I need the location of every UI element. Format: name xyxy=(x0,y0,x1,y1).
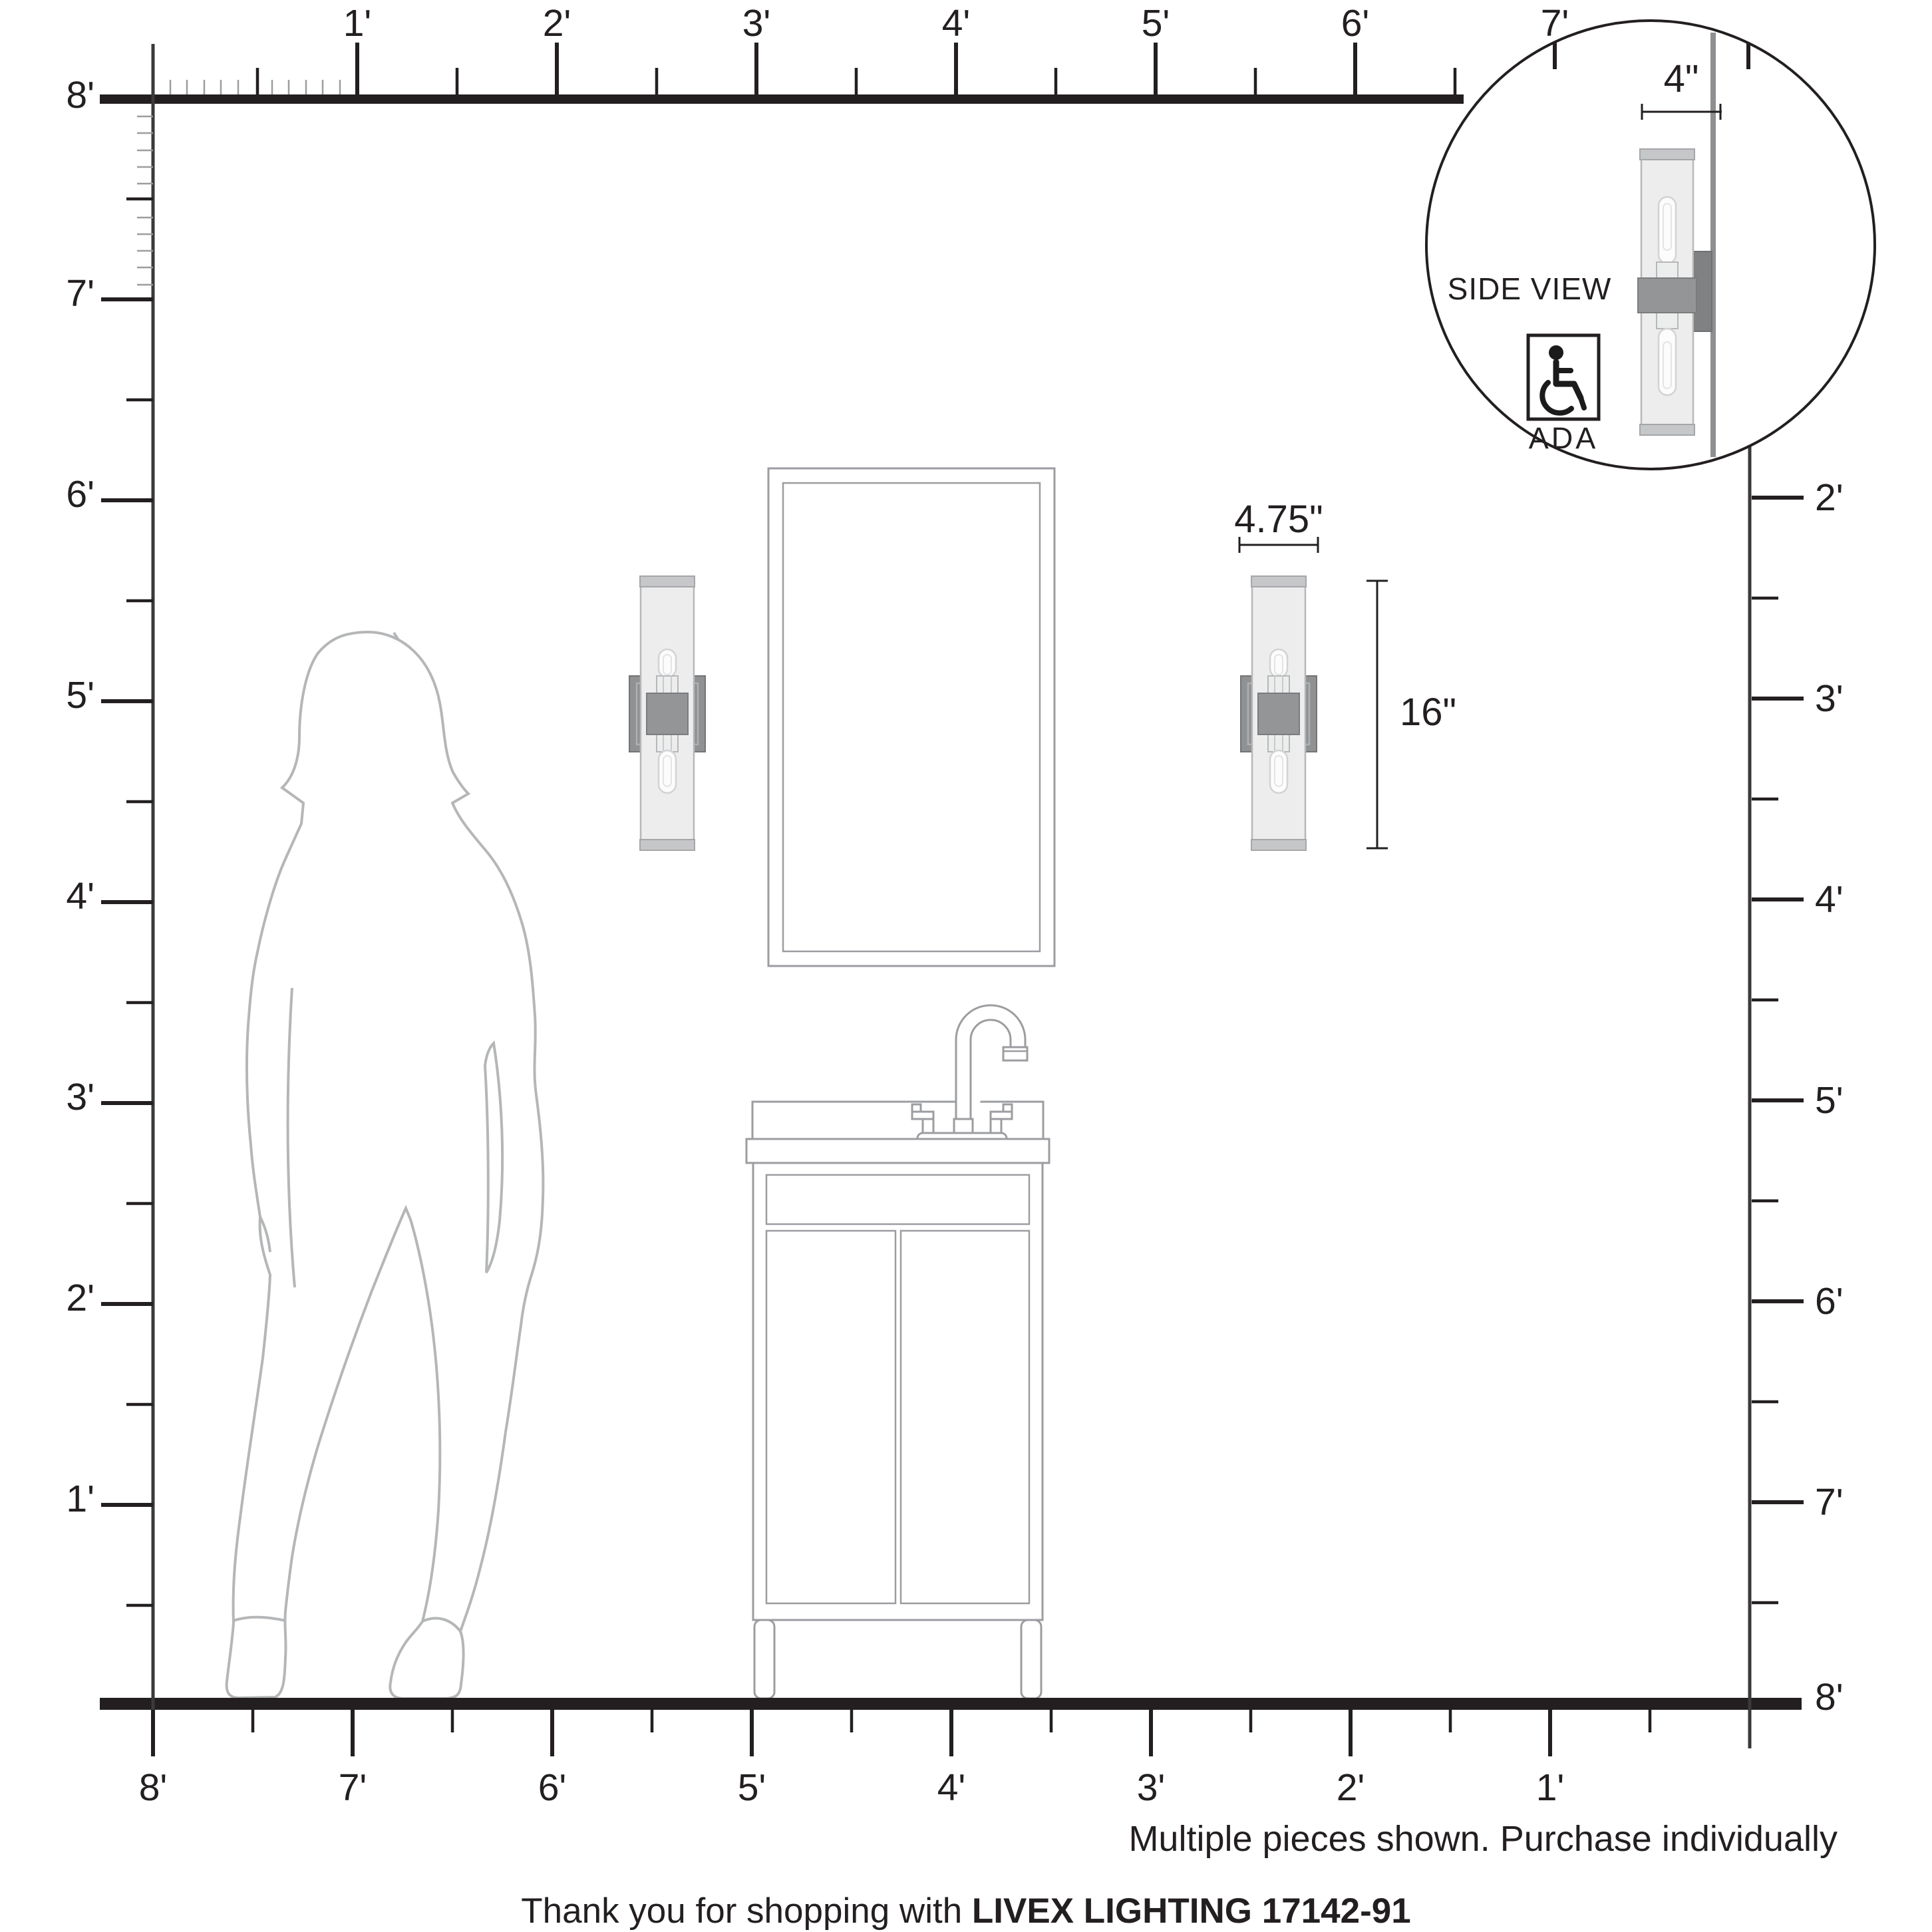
bottom-ruler-label-4ft: 4' xyxy=(937,1766,966,1809)
left-ruler-label-1ft: 1' xyxy=(66,1478,94,1520)
left-ruler-label-4ft: 4' xyxy=(66,875,94,917)
top-ruler-foot-ticks xyxy=(357,43,1555,94)
footer-brand-model: LIVEX LIGHTING 17142-91 xyxy=(972,1891,1411,1931)
footer-thanks-prefix: Thank you for shopping with xyxy=(521,1891,972,1931)
left-sconce xyxy=(629,576,705,850)
wheelchair-footrest xyxy=(1581,398,1584,408)
side-view-label: SIDE VIEW xyxy=(1448,271,1612,306)
faucet-handle-right-lever xyxy=(991,1112,1012,1119)
side-sconce-upper-bulb xyxy=(1659,197,1676,263)
right-ruler-label-7ft: 7' xyxy=(1815,1481,1844,1524)
left-ruler-label-5ft: 5' xyxy=(66,674,94,717)
right-ruler-label-6ft: 6' xyxy=(1815,1280,1844,1323)
right-ruler-label-2ft: 2' xyxy=(1815,476,1844,519)
width-dimension: 4.75" xyxy=(1234,498,1323,553)
side-sconce-bottom-cap xyxy=(1640,424,1694,435)
left-ruler-label-2ft: 2' xyxy=(66,1277,94,1319)
faucet-riser-collar xyxy=(954,1119,973,1133)
bottom-ruler-label-2ft: 2' xyxy=(1337,1766,1365,1809)
left-ruler-label-6ft: 6' xyxy=(66,473,94,516)
product-dimension-diagram: 4.75" 16" 1' 2' 3' 4' 5' 6' 7' 8' 7' 6' … xyxy=(0,0,1932,1932)
mirror-inner-frame xyxy=(783,483,1040,951)
side-sconce-top-cap xyxy=(1640,149,1694,160)
top-ruler-half-ticks xyxy=(257,68,1455,94)
footer-thanks: Thank you for shopping with LIVEX LIGHTI… xyxy=(521,1891,1410,1931)
bottom-ruler-label-3ft: 3' xyxy=(1137,1766,1166,1809)
top-ruler-label-3ft: 3' xyxy=(742,2,771,45)
vanity-door-left xyxy=(766,1231,895,1603)
side-sconce-lower-socket xyxy=(1657,313,1678,329)
top-ruler-label-5ft: 5' xyxy=(1142,2,1170,45)
vanity-door-right xyxy=(901,1231,1029,1603)
left-ruler-label-3ft: 3' xyxy=(66,1076,94,1118)
scale-person-silhouette xyxy=(227,632,544,1698)
mirror xyxy=(768,468,1054,966)
side-sconce-lower-bulb xyxy=(1659,329,1676,395)
right-ruler-label-3ft: 3' xyxy=(1815,677,1844,720)
vanity-countertop xyxy=(746,1139,1049,1163)
faucet-handle-left-nub xyxy=(912,1104,921,1112)
faucet-handle-left-lever xyxy=(912,1112,933,1119)
right-ruler-label-8ft: 8' xyxy=(1815,1676,1844,1718)
width-dimension-label: 4.75" xyxy=(1234,498,1323,541)
left-ruler-foot-ticks xyxy=(101,299,153,1505)
faucet-nozzle xyxy=(1003,1047,1027,1060)
side-sconce-upper-socket xyxy=(1657,262,1678,278)
right-ruler-label-5ft: 5' xyxy=(1815,1079,1844,1122)
footer-note: Multiple pieces shown. Purchase individu… xyxy=(1128,1819,1838,1859)
left-ruler-label-8ft: 8' xyxy=(66,74,94,116)
top-ruler-label-4ft: 4' xyxy=(942,2,971,45)
faucet-handle-right-nub xyxy=(1003,1104,1012,1112)
wheelchair-head xyxy=(1549,345,1563,360)
ada-badge: ADA xyxy=(1528,335,1599,455)
bottom-ruler-label-7ft: 7' xyxy=(339,1766,367,1809)
top-ruler-inch-ticks xyxy=(170,80,340,94)
left-ruler-label-7ft: 7' xyxy=(66,272,94,315)
floor-bar xyxy=(100,1698,1802,1710)
right-ruler-label-4ft: 4' xyxy=(1815,878,1844,921)
height-dimension-line xyxy=(1367,580,1388,849)
ada-label: ADA xyxy=(1529,421,1599,455)
bottom-ruler-label-6ft: 6' xyxy=(538,1766,567,1809)
ceiling-bar xyxy=(100,94,1464,104)
vanity xyxy=(746,1005,1049,1698)
bottom-ruler-label-5ft: 5' xyxy=(738,1766,766,1809)
inset-depth-label: 4" xyxy=(1664,57,1699,100)
bottom-ruler-label-8ft: 8' xyxy=(139,1766,168,1809)
side-sconce-band xyxy=(1638,278,1696,313)
height-dimension-label: 16" xyxy=(1400,691,1456,734)
side-view-inset: 4" SIDE VIEW ADA xyxy=(1426,21,1875,469)
top-ruler-label-6ft: 6' xyxy=(1341,2,1370,45)
height-dimension: 16" xyxy=(1367,580,1456,849)
faucet-handle-left-stem xyxy=(923,1119,933,1133)
top-ruler-label-1ft: 1' xyxy=(343,2,372,45)
vanity-leg-left xyxy=(754,1620,774,1698)
left-ruler-inch-ticks xyxy=(137,116,153,285)
vanity-drawer-panel xyxy=(766,1175,1029,1224)
bottom-ruler-label-1ft: 1' xyxy=(1536,1766,1565,1809)
right-sconce xyxy=(1241,576,1317,850)
top-ruler-label-2ft: 2' xyxy=(543,2,571,45)
ada-box xyxy=(1528,335,1599,419)
faucet-handle-right-stem xyxy=(991,1119,1001,1133)
vanity-leg-right xyxy=(1021,1620,1041,1698)
